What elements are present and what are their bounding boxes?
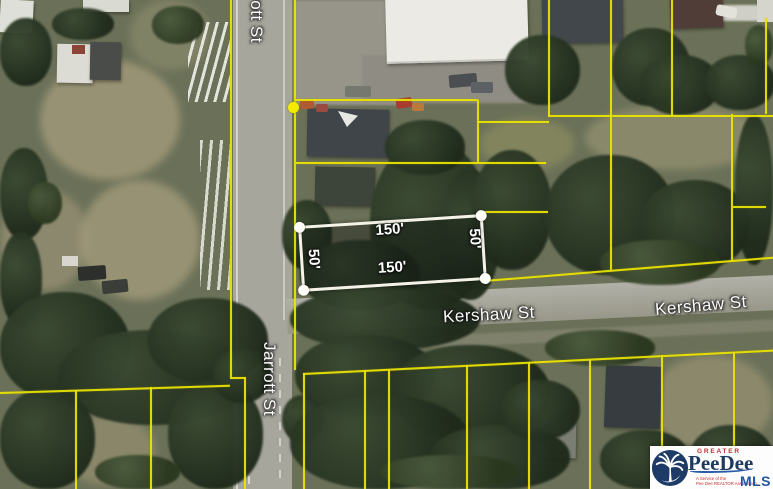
parcel-dimension-right: 50' xyxy=(466,228,483,249)
parcel-corner-marker xyxy=(288,102,299,113)
parcel-boundary-line xyxy=(294,0,296,370)
parcel-dimension-top: 150' xyxy=(375,221,405,239)
parcel-boundary-line xyxy=(364,370,366,489)
object xyxy=(62,256,78,266)
grass-patch xyxy=(80,180,200,300)
parcel-boundary-line xyxy=(477,100,479,163)
logo-text-block: GREATER PeeDee A Service of the Pee Dee … xyxy=(689,446,773,489)
house-roof xyxy=(315,166,376,206)
tree-canopy xyxy=(380,455,520,489)
vehicle xyxy=(345,86,371,97)
parcel-boundary-line xyxy=(75,390,77,489)
greater-peedee-mls-logo: GREATER PeeDee A Service of the Pee Dee … xyxy=(650,446,773,489)
parcel-dimension-bottom: 150' xyxy=(377,259,407,277)
tree-canopy xyxy=(0,18,52,86)
parcel-boundary-line xyxy=(244,377,246,489)
parcel-boundary-line xyxy=(388,369,390,489)
tree-canopy xyxy=(0,388,95,489)
parcel-boundary-line xyxy=(731,114,733,260)
road-edge-line xyxy=(283,0,285,320)
parcel-boundary-line xyxy=(671,0,673,116)
street-label-jarrott: Jarrott St xyxy=(259,342,279,416)
highlighted-parcel: 150' 150' 50' 50' xyxy=(298,214,487,292)
tree-canopy xyxy=(28,182,62,224)
aerial-parcel-map: 150' 150' 50' 50' Jarrott St Jarrott St … xyxy=(0,0,773,489)
parcel-boundary-line xyxy=(477,121,549,123)
roof-detail xyxy=(72,45,85,54)
palmetto-moon-icon xyxy=(651,449,689,487)
parcel-boundary-line xyxy=(230,0,232,378)
parcel-vertex-dot xyxy=(294,222,306,234)
parcel-boundary-line xyxy=(294,99,478,101)
parcel-boundary-line xyxy=(466,365,468,489)
logo-mls-text: MLS xyxy=(740,473,771,489)
street-label-kershaw-west: Kershaw St xyxy=(443,303,536,328)
tree-canopy xyxy=(95,455,180,489)
vehicle xyxy=(101,279,128,295)
vehicle xyxy=(316,104,328,112)
parcel-boundary-line xyxy=(589,359,591,489)
shed-roof xyxy=(90,42,122,81)
parcel-vertex-dot xyxy=(298,284,310,296)
tree-canopy xyxy=(505,35,580,105)
vehicle xyxy=(412,103,424,111)
parcel-boundary-line xyxy=(303,373,305,489)
tree-canopy xyxy=(500,380,580,440)
tree-canopy xyxy=(745,25,773,65)
vehicle xyxy=(471,82,493,93)
parcel-boundary-line xyxy=(548,115,773,117)
tree-canopy xyxy=(152,6,204,44)
lumber-stack xyxy=(200,140,230,290)
tree-canopy xyxy=(735,115,773,265)
parcel-boundary-line xyxy=(548,0,550,117)
tree-canopy xyxy=(52,8,114,40)
parcel-boundary-line xyxy=(765,18,767,114)
street-label-jarrott-top: Jarrott St xyxy=(246,0,266,43)
parcel-boundary-line xyxy=(150,387,152,489)
vehicle xyxy=(78,265,107,281)
parcel-boundary-line xyxy=(733,206,766,208)
parcel-dimension-left: 50' xyxy=(305,248,322,269)
parcel-boundary-line xyxy=(296,162,546,164)
parcel-boundary-line xyxy=(528,362,530,489)
tree-canopy xyxy=(385,120,465,175)
road-edge-dashes xyxy=(279,350,281,485)
parcel-boundary-line xyxy=(610,0,612,270)
parcel-boundary-line xyxy=(230,377,245,379)
house-roof xyxy=(604,365,662,429)
parcel-boundary-line xyxy=(484,211,548,213)
